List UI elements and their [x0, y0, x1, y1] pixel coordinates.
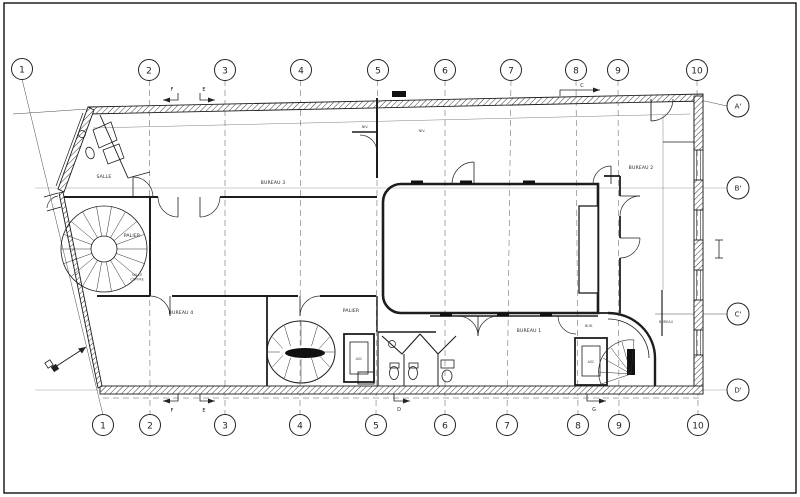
row-bubble-d: D': [727, 379, 749, 401]
room-label-palier: PALIER: [124, 233, 141, 239]
elevator-label: ASC: [356, 357, 363, 361]
oval-stair-core: [285, 348, 325, 358]
grid-bubble-top-9: 9: [608, 60, 629, 81]
grid-bubbles-bottom: 1 2 3 4 5 6 7 8 9 10: [93, 415, 709, 436]
section-letter: F: [171, 87, 174, 93]
grid-bubble-top-1: 1: [12, 59, 33, 80]
grid-number: 9: [615, 67, 621, 77]
north-arrow: [45, 347, 86, 372]
room-label-bureau4: BUREAU 4: [169, 310, 194, 316]
grid-bubble-top-2: 2: [139, 60, 160, 81]
drawing-border: [4, 3, 796, 493]
grid-number: 8: [575, 422, 581, 432]
entry-porch: [44, 193, 61, 211]
grid-lines: [13, 79, 727, 415]
grid-number: 5: [375, 67, 381, 77]
section-letter: F: [171, 408, 174, 414]
room-label-bureau2: BUREAU 2: [629, 165, 654, 171]
grid-bubble-bottom-3: 3: [215, 415, 236, 436]
grid-number: 2: [146, 67, 152, 77]
room-label-salle-coffre: COFFRE: [130, 278, 143, 282]
room-label-palier-core: PALIER: [343, 308, 360, 314]
elevator-label: ASC: [588, 360, 595, 364]
row-bubble-b: B': [727, 177, 749, 199]
section-letter: E: [202, 408, 205, 414]
row-letter: A': [735, 103, 742, 111]
grid-bubble-bottom-5: 5: [366, 415, 387, 436]
grid-bubble-bottom-7: 7: [497, 415, 518, 436]
grid-number: 6: [442, 422, 448, 432]
row-letter: B': [735, 185, 742, 193]
interior-walls: [64, 98, 694, 386]
south-wall: [100, 386, 703, 394]
rounded-room: [383, 162, 611, 317]
grid-bubble-top-5: 5: [368, 60, 389, 81]
grid-bubble-top-3: 3: [215, 60, 236, 81]
row-letter: D': [734, 387, 741, 395]
section-letter: E: [202, 87, 205, 93]
grid-number: 5: [373, 422, 379, 432]
grid-bubble-top-4: 4: [291, 60, 312, 81]
toilet: [390, 367, 399, 380]
grid-number: 1: [100, 422, 106, 432]
row-letter: C': [735, 311, 742, 319]
grid-bubble-bottom-9: 9: [609, 415, 630, 436]
grid-number: 4: [297, 422, 303, 432]
grid-bubble-bottom-1: 1: [93, 415, 114, 436]
grid-bubble-bottom-8: 8: [568, 415, 589, 436]
grid-number: 9: [616, 422, 622, 432]
section-letter: G: [592, 407, 596, 413]
grid-bubble-top-8: 8: [566, 60, 587, 81]
level-note: NIV.: [362, 125, 369, 129]
grid-bubble-top-6: 6: [435, 60, 456, 81]
wc-fixture: [84, 146, 96, 160]
roof-vent: [392, 91, 406, 97]
grid-number: 8: [573, 67, 579, 77]
room-label-bureau3: BUREAU 3: [261, 180, 286, 186]
west-wall-upper: [58, 107, 94, 192]
row-bubble-a: A': [727, 95, 749, 117]
room-label-bur: BUR.: [585, 324, 593, 328]
row-bubble-c: C': [727, 303, 749, 325]
sink-counter: [441, 360, 454, 368]
section-letter: C: [580, 83, 584, 89]
grid-bubble-top-7: 7: [501, 60, 522, 81]
sink-fixture: [389, 341, 396, 348]
grid-number: 6: [442, 67, 448, 77]
grid-number: 7: [504, 422, 510, 432]
grid-bubble-bottom-6: 6: [435, 415, 456, 436]
room-niche: [579, 206, 598, 293]
grid-bubble-bottom-10: 10: [688, 415, 709, 436]
grid-bubbles-top: 1 2 3 4 5 6 7 8 9 10: [12, 59, 708, 81]
floor-plan-page: F E C F E D G SALLE PALIER SALLE COFFRE …: [0, 0, 800, 497]
grid-bubble-top-10: 10: [687, 60, 708, 81]
grid-number: 7: [508, 67, 514, 77]
grid-number: 2: [147, 422, 153, 432]
room-label-salle: SALLE: [97, 174, 112, 180]
core-block: [267, 321, 635, 386]
corner-stair: [599, 340, 635, 384]
grid-number: 10: [692, 422, 704, 432]
east-wall-piers: [694, 96, 703, 394]
section-letter: D: [397, 407, 401, 413]
level-note: NIV.: [419, 129, 426, 133]
grid-number: 10: [691, 67, 703, 77]
grid-number: 3: [222, 422, 228, 432]
toilet: [409, 367, 418, 380]
grid-number: 4: [298, 67, 304, 77]
room-label-bureau-right: BUREAU: [659, 320, 674, 324]
floor-plan-drawing: F E C F E D G SALLE PALIER SALLE COFFRE …: [0, 0, 800, 497]
grid-bubble-bottom-4: 4: [290, 415, 311, 436]
grid-number: 3: [222, 67, 228, 77]
room-label-salle-coffre: SALLE: [132, 273, 142, 277]
section-markers: [163, 88, 723, 404]
grid-bubble-bottom-2: 2: [140, 415, 161, 436]
toilet: [442, 370, 452, 382]
grid-number: 1: [19, 66, 25, 76]
west-wall-lower: [59, 192, 102, 388]
room-label-bureau1: BUREAU 1: [517, 328, 542, 334]
row-marker-bubbles: A' B' C' D': [727, 95, 749, 401]
